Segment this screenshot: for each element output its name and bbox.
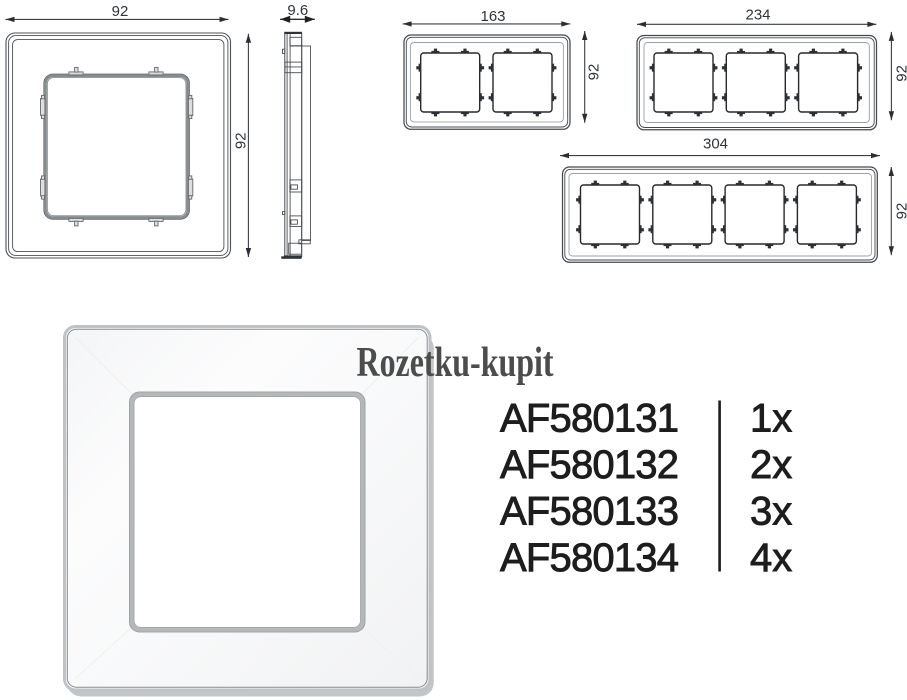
svg-text:9.6: 9.6 [287,2,308,19]
svg-text:AF580132: AF580132 [500,443,679,487]
svg-text:163: 163 [480,8,505,25]
svg-text:AF580133: AF580133 [500,490,679,534]
svg-text:92: 92 [233,132,250,149]
svg-text:92: 92 [112,3,129,20]
svg-text:4x: 4x [750,536,792,580]
svg-text:304: 304 [703,136,728,153]
svg-text:Rozetku-kupit: Rozetku-kupit [357,339,554,386]
svg-text:AF580131: AF580131 [500,397,679,441]
svg-text:92: 92 [893,203,907,220]
svg-text:234: 234 [745,7,770,24]
svg-text:3x: 3x [750,490,792,534]
svg-text:AF580134: AF580134 [500,536,679,580]
svg-text:2x: 2x [750,443,792,487]
svg-text:92: 92 [893,65,907,82]
svg-text:1x: 1x [750,397,792,441]
svg-text:92: 92 [586,64,603,81]
